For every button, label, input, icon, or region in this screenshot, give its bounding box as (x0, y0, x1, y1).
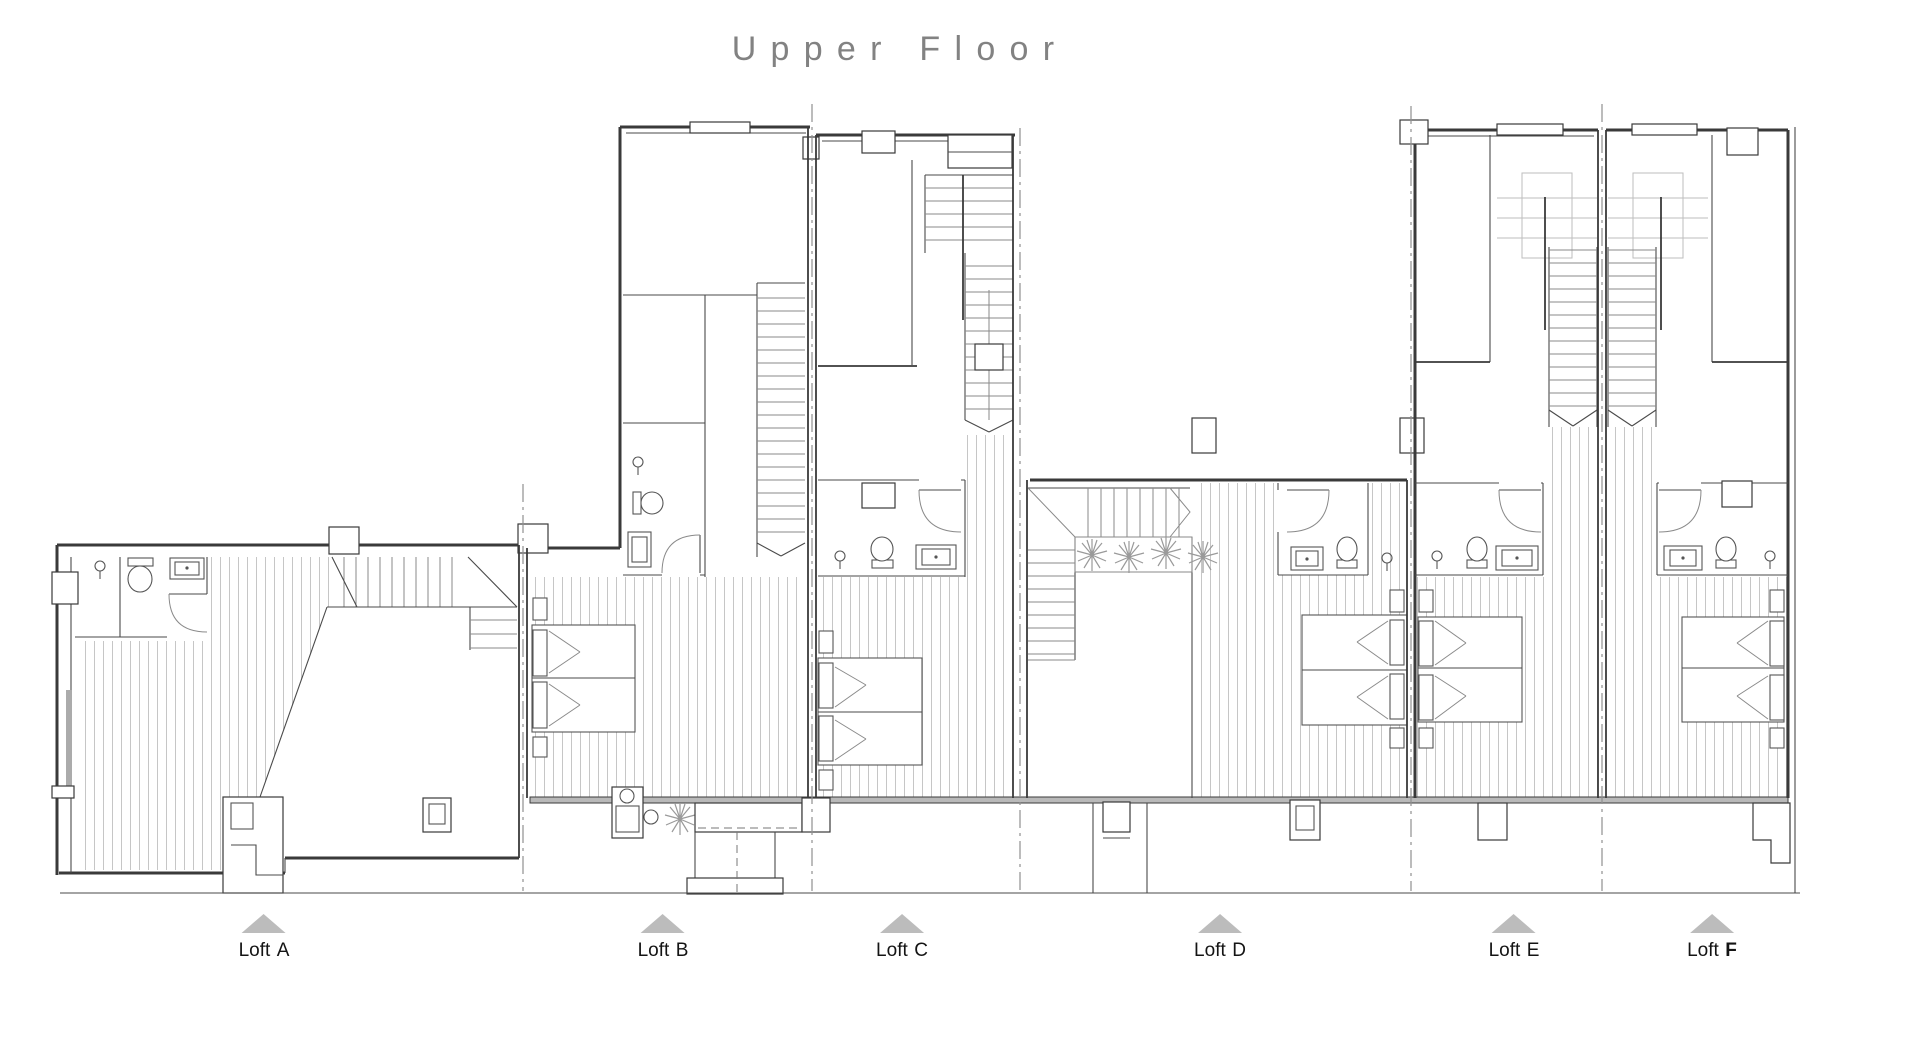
loft-d-terrace (1093, 800, 1320, 893)
chimney (1478, 803, 1507, 840)
label-prefix: Loft (876, 940, 908, 961)
window (1632, 124, 1697, 135)
label-prefix: Loft (638, 940, 670, 961)
entrance-triangle-icon (1690, 914, 1734, 933)
closet (862, 483, 895, 508)
loft-e-bathroom (1415, 483, 1543, 575)
entrance-triangle-icon (1198, 914, 1242, 933)
ceiling-light-icon (633, 457, 643, 475)
plant-icon (1151, 537, 1181, 569)
chimney (1192, 418, 1216, 453)
floor-plan-page: Upper Floor LoftA LoftB LoftC LoftD Loft… (0, 0, 1920, 1052)
loft-label-a: LoftA (239, 914, 290, 962)
window (690, 122, 750, 133)
plant-icon (665, 803, 695, 835)
loft-label-e: LoftE (1489, 914, 1540, 962)
washbasin-icon (1291, 547, 1323, 570)
entrance-triangle-icon (880, 914, 924, 933)
chimney (1400, 418, 1424, 453)
loft-b-staircase (757, 283, 805, 557)
washbasin-icon (628, 532, 651, 567)
door-swing-icon (1659, 490, 1701, 532)
page-title: Upper Floor (560, 30, 1240, 69)
washbasin-icon (170, 558, 204, 579)
south-facade-wall (530, 797, 1788, 803)
floor-plan-canvas (0, 0, 1920, 1052)
chimney (329, 527, 359, 554)
label-prefix: Loft (1687, 940, 1719, 961)
washbasin-icon (916, 545, 956, 569)
washbasin-icon (1664, 546, 1702, 570)
wood-floor-hatch-areas (77, 427, 1788, 870)
entrance-triangle-icon (1492, 914, 1536, 933)
loft-label-b: LoftB (638, 914, 689, 962)
ceiling-light-icon (95, 561, 105, 579)
label-letter: A (277, 940, 290, 961)
door-swing-icon (169, 594, 207, 632)
label-letter: F (1725, 940, 1737, 961)
loft-label-d: LoftD (1194, 914, 1246, 962)
pillar (1400, 120, 1428, 144)
window-glass (66, 690, 72, 788)
plant-icon (1114, 541, 1144, 573)
label-prefix: Loft (1489, 940, 1521, 961)
toilet-icon (871, 537, 893, 568)
loft-f-bathroom (1657, 481, 1788, 575)
entrance-triangle-icon (242, 914, 286, 933)
loft-label-f: LoftF (1687, 914, 1737, 962)
toilet-icon (1716, 537, 1736, 568)
loft-f-terrace (1753, 803, 1790, 863)
door-swing-icon (919, 490, 961, 532)
loft-c-bathroom (818, 480, 965, 577)
label-letter: E (1527, 940, 1540, 961)
label-letter: D (1232, 940, 1246, 961)
loft-label-c: LoftC (876, 914, 928, 962)
door-swing-icon (1499, 490, 1541, 532)
label-prefix: Loft (1194, 940, 1226, 961)
ceiling-light-icon (1765, 551, 1775, 569)
label-prefix: Loft (239, 940, 271, 961)
loft-a-bathroom (75, 557, 207, 637)
entrance-triangle-icon (641, 914, 685, 933)
toilet-icon (128, 558, 153, 592)
loft-f-staircase (1608, 173, 1708, 427)
skylight (975, 344, 1003, 370)
loft-a-terrace-structures (223, 797, 451, 893)
label-letter: B (676, 940, 689, 961)
closet (1727, 128, 1758, 155)
loft-a-staircase (327, 557, 517, 650)
ceiling-light-icon (835, 551, 845, 569)
window (1497, 124, 1563, 135)
closet (1722, 481, 1752, 507)
window (862, 131, 895, 153)
toilet-icon (1337, 537, 1357, 568)
loft-d-staircase (1028, 488, 1192, 798)
loft-b-bathroom (623, 457, 705, 575)
toilet-icon (1467, 537, 1487, 568)
door-swing-icon (662, 535, 700, 573)
loft-e-staircase (1497, 173, 1597, 427)
plant-icon (1077, 539, 1107, 571)
washbasin-icon (1496, 546, 1538, 570)
toilet-icon (633, 492, 663, 514)
label-letter: C (914, 940, 928, 961)
loft-c-staircase (925, 175, 1013, 432)
ceiling-light-icon (1432, 551, 1442, 569)
